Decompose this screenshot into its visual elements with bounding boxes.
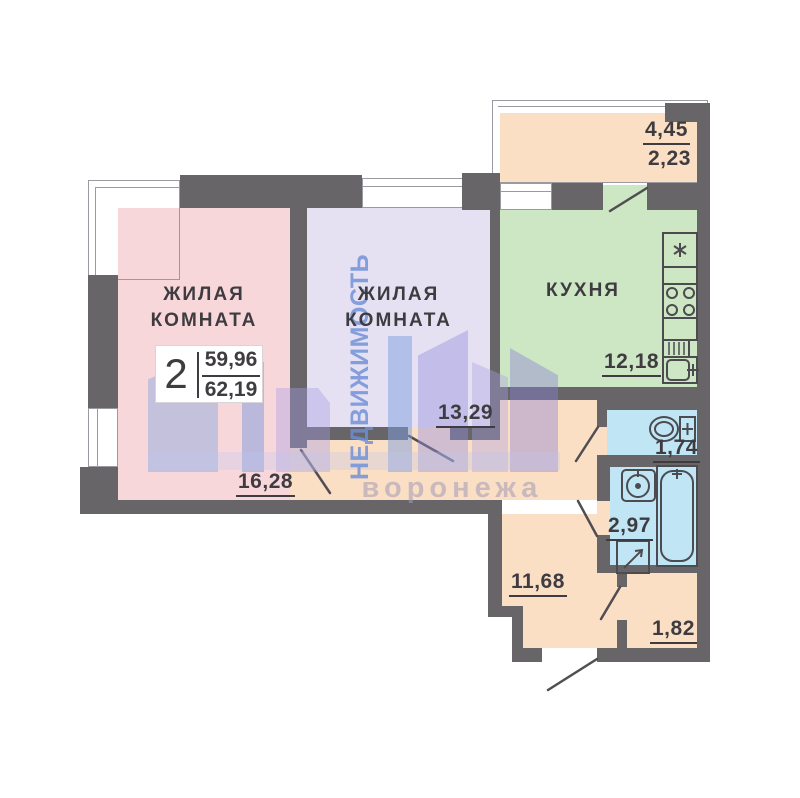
floor-plan: НЕДВИЖИМОСТЬ воронежа ЖИЛАЯ КОМНАТА ЖИЛА… bbox=[0, 0, 800, 798]
room-count: 2 bbox=[156, 346, 196, 404]
room-label-living-2: ЖИЛАЯ КОМНАТА bbox=[307, 282, 490, 334]
area-label-hallway: 11,68 bbox=[509, 570, 567, 597]
wall bbox=[597, 387, 710, 410]
area-label-kitchen: 12,18 bbox=[602, 350, 661, 377]
wall bbox=[462, 173, 500, 210]
watermark-city-text: воронежа bbox=[336, 472, 568, 505]
door-opening bbox=[597, 427, 607, 455]
wall bbox=[488, 514, 502, 606]
window bbox=[362, 178, 463, 208]
hallway-floor bbox=[523, 606, 597, 648]
window-glass bbox=[97, 408, 98, 467]
summary-fraction-line bbox=[202, 375, 260, 377]
area-label-living-1: 16,28 bbox=[236, 470, 295, 497]
wall bbox=[180, 175, 362, 208]
door-swing-entrance bbox=[548, 659, 597, 690]
wall bbox=[597, 408, 607, 427]
area-label-living-2: 13,29 bbox=[436, 401, 495, 428]
kitchen-balcony-door-floor bbox=[603, 185, 647, 210]
loggia-outline bbox=[95, 187, 180, 280]
area-label-storage: 1,82 bbox=[650, 617, 697, 644]
wall bbox=[488, 606, 523, 617]
summary-divider bbox=[197, 352, 199, 398]
wall bbox=[597, 467, 610, 501]
room-label-kitchen: КУХНЯ bbox=[500, 278, 666, 304]
window-glass bbox=[500, 191, 552, 192]
wall bbox=[512, 648, 542, 662]
window bbox=[88, 408, 118, 467]
wall bbox=[512, 617, 523, 648]
apartment-summary-box: 2 59,96 62,19 bbox=[155, 345, 263, 403]
area-label-wc: 1,74 bbox=[653, 436, 700, 463]
area-label-balcony-counted: 2,23 bbox=[646, 147, 693, 172]
room-label-living-1: ЖИЛАЯ КОМНАТА bbox=[118, 282, 290, 334]
area-overall-total: 62,19 bbox=[200, 378, 262, 402]
wall bbox=[617, 573, 627, 587]
wall bbox=[697, 210, 710, 660]
area-label-balcony-full: 4,45 bbox=[643, 118, 690, 145]
wall bbox=[597, 648, 710, 662]
window-glass bbox=[362, 186, 463, 187]
area-living-total: 59,96 bbox=[200, 348, 262, 372]
window bbox=[500, 183, 552, 210]
area-label-bathroom: 2,97 bbox=[606, 514, 653, 541]
wall bbox=[597, 565, 710, 573]
wall bbox=[88, 275, 118, 408]
wall bbox=[552, 183, 603, 210]
wall bbox=[617, 620, 627, 648]
